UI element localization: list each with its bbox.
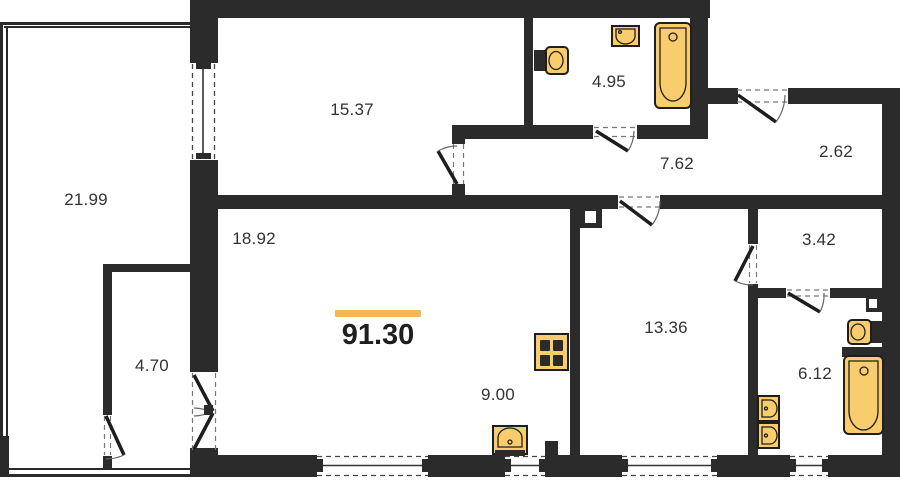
window-icon [505, 457, 545, 476]
wall-segment [545, 441, 558, 456]
room-label-storage: 4.70 [135, 356, 169, 376]
wall-segment [103, 264, 190, 272]
room-label-entry-hall: 2.62 [819, 142, 853, 162]
shelf-counter [842, 347, 883, 357]
wall-segment [452, 125, 593, 139]
room-label-bathroom-small: 4.95 [592, 72, 626, 92]
basin-2-icon [758, 423, 779, 448]
toilet-icon [534, 47, 568, 74]
window-icon [317, 457, 428, 476]
wall-segment [570, 209, 580, 455]
wall-segment [190, 160, 218, 372]
door-bedroom [438, 144, 464, 184]
wall-segment [690, 0, 708, 133]
glazing-left-inner [6, 26, 8, 472]
room-label-wardrobe: 3.42 [802, 230, 836, 250]
plan-linework [0, 0, 900, 484]
wall-segment [693, 88, 738, 104]
room-label-kitchen: 9.00 [481, 385, 515, 405]
wall-segment [0, 436, 9, 477]
wall-segment [828, 455, 900, 477]
glazing-top-outer [0, 22, 195, 25]
wall-segment [637, 125, 708, 139]
door-wardrobe [735, 245, 757, 285]
wall-segment [748, 288, 786, 298]
stove-icon [535, 334, 568, 370]
glazing-bottom-outer [0, 474, 195, 477]
duct-box-2-inner [869, 299, 877, 308]
wall-segment [190, 0, 710, 18]
wall-segment [882, 88, 900, 477]
door-bathroom-small [594, 128, 636, 152]
window-icon [790, 457, 828, 476]
room-label-hallway: 7.62 [660, 154, 694, 174]
window-icon [193, 63, 215, 159]
room-label-living-room: 18.92 [232, 229, 276, 249]
wall-segment [190, 448, 218, 477]
wall-segment [190, 0, 218, 63]
door-handle [204, 405, 213, 415]
balcony-door [193, 373, 216, 451]
total-area-block: 91.30 [335, 310, 421, 350]
door-storage [105, 416, 125, 459]
duct-box-inner [585, 211, 596, 223]
wall-segment [660, 195, 900, 209]
toilet-2-icon [848, 320, 882, 344]
basin-icon [758, 396, 779, 421]
glazing-top-inner [4, 26, 190, 28]
wall-segment [213, 195, 465, 209]
bathtub-icon [655, 23, 691, 108]
door-bedroom-2 [619, 197, 660, 225]
total-area-accent-bar [335, 310, 421, 317]
door-bathroom-large [787, 290, 829, 312]
wall-segment [748, 209, 758, 244]
wall-segment [748, 295, 758, 455]
wall-segment [830, 288, 900, 298]
wall-segment [545, 455, 622, 477]
wash-sink-icon [612, 26, 639, 46]
bathtub-2-icon [844, 356, 883, 434]
room-label-bathroom-large: 6.12 [798, 364, 832, 384]
room-label-loggia: 21.99 [64, 190, 108, 210]
wall-segment [524, 18, 533, 125]
entrance-door [737, 90, 787, 122]
window-icon [622, 457, 717, 476]
wall-segment [103, 456, 112, 468]
wall-segment [717, 455, 790, 477]
room-label-bedroom: 15.37 [330, 100, 374, 120]
total-area-value: 91.30 [335, 321, 421, 350]
kitchen-sink-icon [493, 426, 527, 456]
glazing-bottom-inner [4, 468, 190, 470]
floor-plan: 21.99 15.37 4.95 7.62 2.62 18.92 3.42 13… [0, 0, 900, 484]
glazing-left-outer [0, 22, 3, 477]
wall-segment [103, 264, 112, 415]
room-label-bedroom-2: 13.36 [644, 318, 688, 338]
wall-segment [452, 184, 465, 195]
wall-segment [428, 455, 505, 477]
